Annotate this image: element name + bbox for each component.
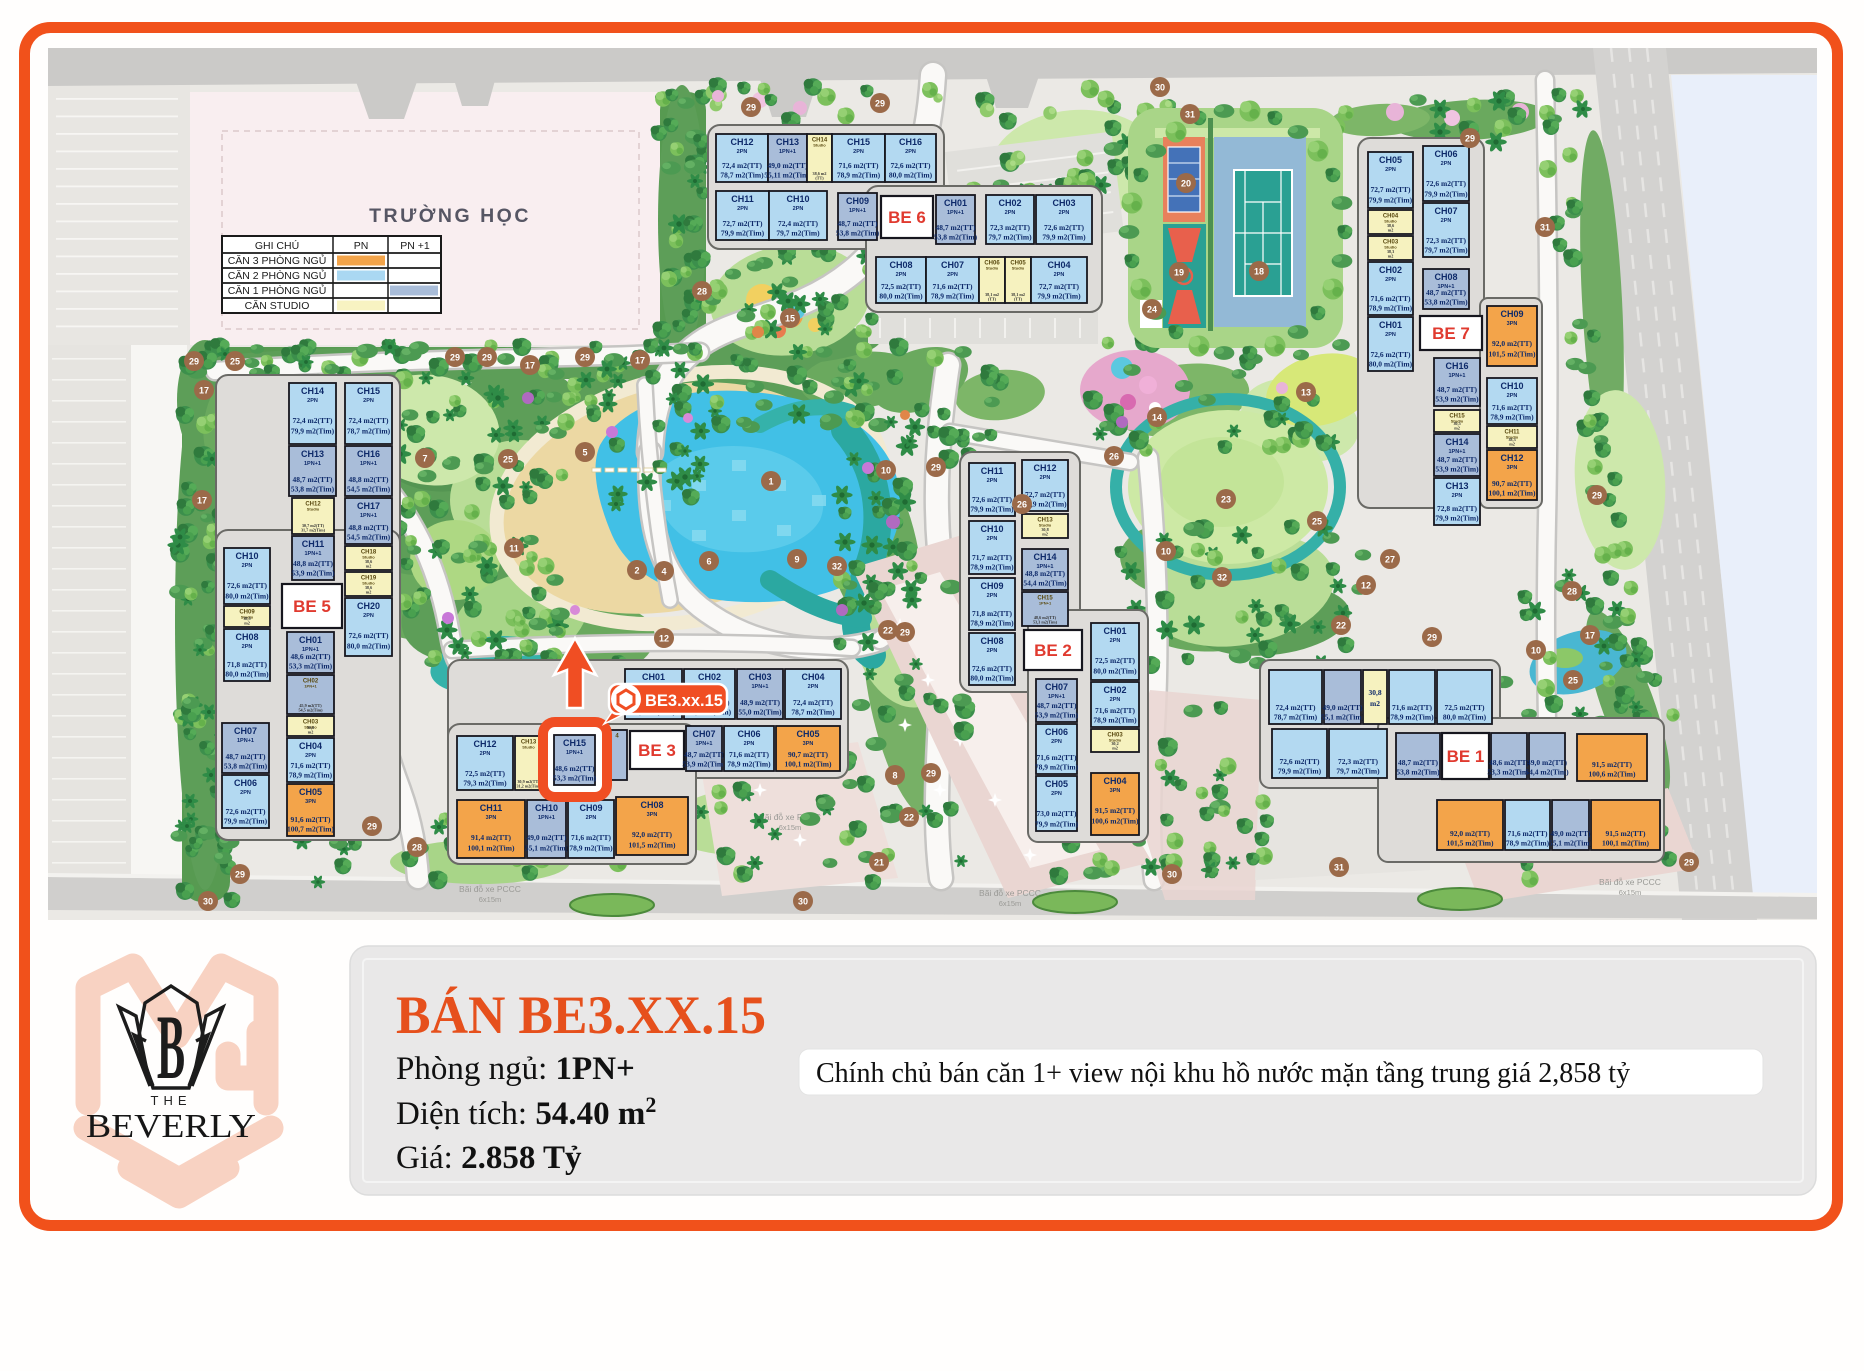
svg-text:30,8: 30,8 — [1368, 688, 1381, 697]
svg-text:100,1 m2(Tim): 100,1 m2(Tim) — [1602, 839, 1649, 848]
svg-text:80,0 m2(Tim): 80,0 m2(Tim) — [1443, 713, 1487, 722]
svg-text:48,7 m2(TT): 48,7 m2(TT) — [1398, 758, 1439, 767]
svg-text:71,6 m2(TT): 71,6 m2(TT) — [839, 161, 880, 170]
svg-text:(TT): (TT) — [815, 176, 824, 181]
svg-text:23: 23 — [1221, 495, 1231, 505]
svg-text:72,6 m2(TT): 72,6 m2(TT) — [1044, 223, 1085, 232]
svg-text:CH14: CH14 — [1445, 437, 1468, 447]
svg-text:29: 29 — [367, 822, 377, 832]
svg-text:29: 29 — [580, 353, 590, 363]
svg-text:54,5 m2(Tim): 54,5 m2(Tim) — [347, 485, 391, 494]
svg-text:78,9 m2(Tim): 78,9 m2(Tim) — [1093, 716, 1137, 725]
svg-text:78,9 m2(Tim): 78,9 m2(Tim) — [970, 563, 1014, 572]
svg-text:Studio: Studio — [1012, 266, 1025, 271]
svg-text:48,8 m2(TT): 48,8 m2(TT) — [293, 559, 334, 568]
svg-text:CH09: CH09 — [1500, 309, 1523, 319]
svg-text:53,9 m2(Tim): 53,9 m2(Tim) — [1435, 395, 1479, 404]
svg-text:79,9 m2(Tim): 79,9 m2(Tim) — [1035, 820, 1079, 829]
svg-text:2PN: 2PN — [1054, 272, 1065, 278]
svg-text:100,1 m2(Tim): 100,1 m2(Tim) — [785, 760, 832, 769]
svg-text:1PN+1: 1PN+1 — [947, 210, 964, 216]
svg-text:15: 15 — [785, 314, 795, 324]
svg-text:49,0 m2(TT): 49,0 m2(TT) — [527, 833, 568, 842]
svg-text:72,5 m2(TT): 72,5 m2(TT) — [1445, 703, 1486, 712]
svg-text:79,7 m2(Tim): 79,7 m2(Tim) — [988, 233, 1032, 242]
svg-text:CH15: CH15 — [847, 137, 870, 147]
svg-text:53,8 m2(Tim): 53,8 m2(Tim) — [1396, 768, 1440, 777]
svg-text:29: 29 — [189, 357, 199, 367]
svg-text:79,9 m2(Tim): 79,9 m2(Tim) — [721, 229, 765, 238]
svg-text:2PN: 2PN — [307, 398, 318, 404]
svg-text:1PN+1: 1PN+1 — [304, 461, 321, 467]
svg-text:79,9 m2(Tim): 79,9 m2(Tim) — [291, 427, 335, 436]
svg-text:18: 18 — [1254, 267, 1264, 277]
svg-text:2PN: 2PN — [896, 272, 907, 278]
svg-text:6x15m: 6x15m — [479, 895, 502, 904]
svg-text:12: 12 — [1361, 581, 1371, 591]
svg-text:20: 20 — [1181, 179, 1191, 189]
svg-text:3PN: 3PN — [1110, 788, 1121, 794]
svg-text:29: 29 — [926, 769, 936, 779]
svg-text:53,8 m2(Tim): 53,8 m2(Tim) — [224, 762, 268, 771]
svg-text:48,7 m2(TT): 48,7 m2(TT) — [684, 750, 725, 759]
svg-text:1PN+1: 1PN+1 — [305, 551, 322, 557]
svg-text:1PN+1: 1PN+1 — [304, 684, 317, 689]
svg-text:72,5 m2(TT): 72,5 m2(TT) — [465, 769, 506, 778]
svg-text:CH08: CH08 — [1434, 272, 1457, 282]
svg-text:79,9 m2(Tim): 79,9 m2(Tim) — [1278, 767, 1322, 776]
svg-text:CĂN STUDIO: CĂN STUDIO — [245, 299, 310, 312]
svg-text:2PN: 2PN — [808, 684, 819, 690]
svg-text:72,4 m2(TT): 72,4 m2(TT) — [349, 416, 390, 425]
svg-text:m2: m2 — [308, 730, 314, 735]
svg-text:CH08: CH08 — [235, 632, 258, 642]
svg-text:55,1 m2(Tim): 55,1 m2(Tim) — [1321, 713, 1365, 722]
svg-text:91,5 m2(TT): 91,5 m2(TT) — [1606, 829, 1647, 838]
svg-text:2PN: 2PN — [793, 206, 804, 212]
svg-text:79,9 m2(Tim): 79,9 m2(Tim) — [970, 505, 1014, 514]
svg-text:91,6 m2(TT): 91,6 m2(TT) — [291, 815, 332, 824]
svg-text:78,9 m2(Tim): 78,9 m2(Tim) — [727, 760, 771, 769]
svg-text:26: 26 — [1109, 452, 1119, 462]
svg-text:29: 29 — [235, 870, 245, 880]
svg-text:100,6 m2(Tim): 100,6 m2(Tim) — [1092, 817, 1139, 826]
svg-text:CH05: CH05 — [299, 787, 322, 797]
svg-text:2PN: 2PN — [987, 536, 998, 542]
svg-text:53,3 m2(Tim): 53,3 m2(Tim) — [553, 774, 597, 783]
svg-text:CH10: CH10 — [1500, 381, 1523, 391]
svg-text:48,7 m2(TT): 48,7 m2(TT) — [293, 475, 334, 484]
svg-text:71,8 m2(TT): 71,8 m2(TT) — [227, 660, 268, 669]
svg-text:71,6 m2(TT): 71,6 m2(TT) — [1508, 829, 1549, 838]
svg-text:1PN+1: 1PN+1 — [1449, 373, 1466, 379]
svg-text:54,4 m2(Tim): 54,4 m2(Tim) — [1023, 579, 1067, 588]
svg-text:72,5 m2(TT): 72,5 m2(TT) — [1095, 656, 1136, 665]
svg-text:80,0 m2(Tim): 80,0 m2(Tim) — [225, 670, 269, 679]
svg-text:55,11 m2(Tim): 55,11 m2(Tim) — [764, 171, 811, 180]
svg-text:80,0 m2(Tim): 80,0 m2(Tim) — [225, 592, 269, 601]
svg-text:CH16: CH16 — [357, 449, 380, 459]
svg-text:92,0 m2(TT): 92,0 m2(TT) — [1492, 339, 1533, 348]
svg-text:2PN: 2PN — [1441, 161, 1452, 167]
svg-text:31,2 m2(Tim): 31,2 m2(Tim) — [516, 784, 541, 789]
svg-text:54,4 m2(Tim): 54,4 m2(Tim) — [1525, 768, 1569, 777]
svg-text:72,8 m2(TT): 72,8 m2(TT) — [1437, 504, 1478, 513]
svg-text:48,8 m2(TT): 48,8 m2(TT) — [1025, 569, 1066, 578]
svg-text:CH09: CH09 — [980, 581, 1003, 591]
svg-text:CĂN 2 PHÒNG NGỦ: CĂN 2 PHÒNG NGỦ — [228, 269, 327, 282]
svg-text:30: 30 — [203, 897, 213, 907]
svg-text:TRƯỜNG HỌC: TRƯỜNG HỌC — [369, 203, 531, 227]
svg-text:CH08: CH08 — [889, 260, 912, 270]
svg-text:CH10: CH10 — [235, 551, 258, 561]
svg-text:48,6 m2(TT): 48,6 m2(TT) — [555, 764, 596, 773]
svg-text:m2: m2 — [1112, 746, 1118, 751]
svg-text:CH11: CH11 — [731, 194, 754, 204]
svg-text:48,7 m2(TT): 48,7 m2(TT) — [1037, 701, 1078, 710]
svg-text:101,5 m2(Tim): 101,5 m2(Tim) — [1489, 350, 1536, 359]
svg-text:25: 25 — [503, 455, 513, 465]
svg-text:26: 26 — [1017, 500, 1027, 510]
svg-text:CH08: CH08 — [980, 636, 1003, 646]
svg-text:78,7 m2(Tim): 78,7 m2(Tim) — [1274, 713, 1318, 722]
svg-text:BEVERLY: BEVERLY — [86, 1108, 256, 1145]
svg-text:78,9 m2(Tim): 78,9 m2(Tim) — [970, 619, 1014, 628]
svg-text:CH07: CH07 — [692, 729, 715, 739]
svg-text:m2: m2 — [1370, 699, 1380, 708]
svg-text:2PN: 2PN — [1110, 697, 1121, 703]
svg-text:91,5 m2(TT): 91,5 m2(TT) — [1592, 760, 1633, 769]
svg-text:CH11: CH11 — [981, 466, 1004, 476]
svg-text:2PN: 2PN — [744, 741, 755, 747]
svg-text:49,0 m2(TT): 49,0 m2(TT) — [1551, 829, 1592, 838]
svg-text:53,9 m2(Tim): 53,9 m2(Tim) — [1435, 465, 1479, 474]
svg-text:22: 22 — [883, 626, 893, 636]
svg-text:24: 24 — [1147, 305, 1157, 315]
svg-text:17: 17 — [1585, 631, 1595, 641]
svg-text:71,6 m2(TT): 71,6 m2(TT) — [1095, 706, 1136, 715]
svg-text:72,6 m2(TT): 72,6 m2(TT) — [1371, 350, 1412, 359]
svg-text:71,6 m2(TT): 71,6 m2(TT) — [1037, 753, 1078, 762]
svg-text:CH13: CH13 — [301, 449, 324, 459]
svg-text:CH05: CH05 — [1045, 779, 1068, 789]
svg-text:1PN+1: 1PN+1 — [360, 513, 377, 519]
svg-text:3PN: 3PN — [1507, 465, 1518, 471]
svg-text:10: 10 — [1161, 547, 1171, 557]
svg-text:71,6 m2(TT): 71,6 m2(TT) — [729, 750, 770, 759]
svg-text:CH11: CH11 — [302, 539, 325, 549]
svg-text:2PN: 2PN — [1385, 277, 1396, 283]
svg-text:100,1 m2(Tim): 100,1 m2(Tim) — [1489, 489, 1536, 498]
svg-text:17: 17 — [199, 386, 209, 396]
svg-text:29: 29 — [1465, 134, 1475, 144]
svg-text:2PN: 2PN — [305, 753, 316, 759]
svg-text:3PN: 3PN — [305, 799, 316, 805]
svg-text:THE: THE — [151, 1093, 192, 1108]
svg-text:CH07: CH07 — [1045, 682, 1068, 692]
svg-text:7: 7 — [422, 454, 427, 464]
svg-text:1: 1 — [768, 477, 773, 487]
svg-text:78,9 m2(Tim): 78,9 m2(Tim) — [1035, 763, 1079, 772]
svg-text:1PN+1: 1PN+1 — [1048, 694, 1065, 700]
svg-text:71,6 m2(TT): 71,6 m2(TT) — [933, 282, 974, 291]
svg-text:53,8 m2(Tim): 53,8 m2(Tim) — [291, 485, 335, 494]
svg-text:29: 29 — [875, 99, 885, 109]
svg-text:90,7 m2(TT): 90,7 m2(TT) — [1492, 479, 1533, 488]
svg-text:CH02: CH02 — [998, 198, 1021, 208]
svg-text:29: 29 — [931, 463, 941, 473]
svg-text:72,4 m2(TT): 72,4 m2(TT) — [1276, 703, 1317, 712]
svg-text:m2: m2 — [366, 590, 372, 595]
svg-text:CH04: CH04 — [801, 672, 824, 682]
svg-text:19: 19 — [1174, 268, 1184, 278]
svg-text:2PN: 2PN — [1051, 739, 1062, 745]
svg-text:1PN+1: 1PN+1 — [566, 750, 583, 756]
svg-text:79,9 m2(Tim): 79,9 m2(Tim) — [1369, 196, 1413, 205]
svg-text:3PN: 3PN — [647, 812, 658, 818]
svg-text:CH12: CH12 — [730, 137, 753, 147]
svg-text:11: 11 — [509, 544, 519, 554]
svg-text:CH09: CH09 — [846, 196, 869, 206]
svg-text:CH04: CH04 — [1047, 260, 1070, 270]
svg-text:72,6 m2(TT): 72,6 m2(TT) — [226, 807, 267, 816]
svg-text:Phòng ngủ: 1PN+: Phòng ngủ: 1PN+ — [396, 1051, 635, 1087]
svg-text:101,5 m2(Tim): 101,5 m2(Tim) — [1447, 839, 1494, 848]
svg-text:29: 29 — [450, 353, 460, 363]
svg-text:Bãi đỗ xe PCCC: Bãi đỗ xe PCCC — [979, 888, 1041, 898]
svg-text:30: 30 — [798, 897, 808, 907]
svg-text:GHI CHÚ: GHI CHÚ — [255, 239, 299, 252]
svg-text:CH13: CH13 — [1445, 481, 1468, 491]
svg-text:2PN: 2PN — [1441, 218, 1452, 224]
svg-text:79,7 m2(Tim): 79,7 m2(Tim) — [1336, 767, 1380, 776]
svg-text:53,8 m2(Tim): 53,8 m2(Tim) — [1424, 298, 1468, 307]
svg-text:100,7 m2(Tim): 100,7 m2(Tim) — [287, 825, 334, 834]
svg-text:79,9 m2(Tim): 79,9 m2(Tim) — [1042, 233, 1086, 242]
svg-text:29: 29 — [1592, 491, 1602, 501]
svg-text:CH12: CH12 — [1500, 453, 1523, 463]
svg-text:2PN: 2PN — [242, 563, 253, 569]
svg-text:CH04: CH04 — [299, 741, 322, 751]
svg-text:48,8 m2(TT): 48,8 m2(TT) — [349, 523, 390, 532]
svg-text:CH06: CH06 — [1045, 727, 1068, 737]
svg-text:72,7 m2(TT): 72,7 m2(TT) — [1025, 490, 1066, 499]
svg-text:31: 31 — [1540, 223, 1550, 233]
svg-text:48,6 m2(TT): 48,6 m2(TT) — [1489, 758, 1530, 767]
svg-text:101,5 m2(Tim): 101,5 m2(Tim) — [629, 841, 676, 850]
svg-text:CH02: CH02 — [698, 672, 721, 682]
svg-text:79,3 m2(Tim): 79,3 m2(Tim) — [463, 779, 507, 788]
svg-text:72,6 m2(TT): 72,6 m2(TT) — [972, 664, 1013, 673]
svg-text:78,9 m2(Tim): 78,9 m2(Tim) — [1506, 839, 1550, 848]
svg-text:78,7 m2(Tim): 78,7 m2(Tim) — [791, 708, 835, 717]
svg-text:80,0 m2(Tim): 80,0 m2(Tim) — [970, 674, 1014, 683]
svg-text:2PN: 2PN — [240, 790, 251, 796]
svg-text:17: 17 — [197, 496, 207, 506]
svg-text:2PN: 2PN — [480, 751, 491, 757]
svg-text:1PN+1: 1PN+1 — [360, 461, 377, 467]
svg-text:13: 13 — [1301, 388, 1311, 398]
svg-text:100,1 m2(Tim): 100,1 m2(Tim) — [468, 844, 515, 853]
svg-text:m2: m2 — [244, 621, 250, 626]
svg-text:12: 12 — [659, 634, 669, 644]
svg-text:2PN: 2PN — [1040, 475, 1051, 481]
svg-text:CH04: CH04 — [1103, 776, 1126, 786]
svg-text:31: 31 — [1185, 110, 1195, 120]
svg-text:1PN+1: 1PN+1 — [752, 684, 769, 690]
svg-text:2PN: 2PN — [1110, 638, 1121, 644]
svg-text:48,9 m2(TT): 48,9 m2(TT) — [740, 698, 781, 707]
svg-text:17: 17 — [635, 356, 645, 366]
svg-text:3PN: 3PN — [1507, 321, 1518, 327]
svg-text:CH01: CH01 — [299, 635, 322, 645]
svg-text:78,9 m2(Tim): 78,9 m2(Tim) — [1490, 413, 1534, 422]
svg-text:1PN+1: 1PN+1 — [849, 208, 866, 214]
svg-text:2PN: 2PN — [1385, 167, 1396, 173]
svg-text:28: 28 — [697, 287, 707, 297]
svg-text:29: 29 — [1684, 858, 1694, 868]
svg-text:100,6 m2(Tim): 100,6 m2(Tim) — [1589, 770, 1636, 779]
svg-text:22: 22 — [904, 813, 914, 823]
svg-text:54,5 m2(Tim): 54,5 m2(Tim) — [347, 533, 391, 542]
svg-text:PN: PN — [354, 240, 369, 252]
svg-text:71,7 m2(TT): 71,7 m2(TT) — [972, 553, 1013, 562]
svg-text:BE 1: BE 1 — [1447, 747, 1485, 766]
svg-text:Bãi đỗ xe PCCC: Bãi đỗ xe PCCC — [1599, 877, 1661, 887]
svg-text:CH16: CH16 — [1445, 361, 1468, 371]
svg-text:28: 28 — [1567, 587, 1577, 597]
svg-text:49,0 m2(TT): 49,0 m2(TT) — [768, 161, 809, 170]
svg-text:54,5 m2(Tim): 54,5 m2(Tim) — [298, 708, 323, 713]
svg-text:2PN: 2PN — [987, 593, 998, 599]
svg-text:25: 25 — [1312, 517, 1322, 527]
svg-text:49,0 m2(TT): 49,0 m2(TT) — [1323, 703, 1364, 712]
svg-text:55,1 m2(Tim): 55,1 m2(Tim) — [1549, 839, 1593, 848]
svg-text:1PN+1: 1PN+1 — [1039, 601, 1052, 606]
svg-text:2PN: 2PN — [363, 398, 374, 404]
svg-text:3PN: 3PN — [486, 815, 497, 821]
svg-text:PN +1: PN +1 — [400, 240, 430, 252]
svg-text:53,9 m2(Tim): 53,9 m2(Tim) — [1035, 711, 1079, 720]
svg-text:27: 27 — [1385, 555, 1395, 565]
svg-text:72,6 m2(TT): 72,6 m2(TT) — [1426, 179, 1467, 188]
svg-text:78,9 m2(Tim): 78,9 m2(Tim) — [289, 771, 333, 780]
svg-text:32: 32 — [1217, 573, 1227, 583]
svg-text:22: 22 — [1336, 621, 1346, 631]
svg-text:2PN: 2PN — [987, 478, 998, 484]
svg-text:72,3 m2(TT): 72,3 m2(TT) — [990, 223, 1031, 232]
svg-text:m2: m2 — [1454, 426, 1460, 431]
svg-text:Chính chủ bán căn 1+ view nội: Chính chủ bán căn 1+ view nội khu hồ nướ… — [816, 1058, 1630, 1089]
svg-text:55,0 m2(Tim): 55,0 m2(Tim) — [738, 708, 782, 717]
svg-text:30: 30 — [1167, 870, 1177, 880]
svg-text:m2: m2 — [1042, 532, 1048, 537]
svg-text:73,0 m2(TT): 73,0 m2(TT) — [1037, 809, 1078, 818]
svg-text:CH08: CH08 — [640, 800, 663, 810]
svg-text:78,7 m2(Tim): 78,7 m2(Tim) — [720, 171, 764, 180]
svg-text:6x15m: 6x15m — [1619, 888, 1642, 897]
svg-text:2PN: 2PN — [737, 149, 748, 155]
svg-text:10: 10 — [1531, 646, 1541, 656]
svg-text:48,8 m2(TT): 48,8 m2(TT) — [349, 475, 390, 484]
svg-text:92,0 m2(TT): 92,0 m2(TT) — [632, 830, 673, 839]
svg-text:Studio: Studio — [813, 143, 826, 148]
svg-text:2PN: 2PN — [1059, 210, 1070, 216]
svg-text:1PN+1: 1PN+1 — [538, 815, 555, 821]
svg-text:2: 2 — [634, 566, 639, 576]
svg-text:72,3 m2(TT): 72,3 m2(TT) — [1338, 757, 1379, 766]
svg-text:2PN: 2PN — [947, 272, 958, 278]
svg-text:CH01: CH01 — [944, 198, 967, 208]
svg-text:72,4 m2(TT): 72,4 m2(TT) — [793, 698, 834, 707]
svg-text:78,9 m2(Tim): 78,9 m2(Tim) — [931, 292, 975, 301]
svg-text:CH07: CH07 — [1434, 206, 1457, 216]
svg-text:CH05: CH05 — [796, 729, 819, 739]
svg-text:CH02: CH02 — [1379, 265, 1402, 275]
svg-text:53,3 m2(Tim): 53,3 m2(Tim) — [289, 662, 333, 671]
svg-text:m2: m2 — [1509, 442, 1515, 447]
svg-text:CH10: CH10 — [535, 803, 558, 813]
svg-text:53,8 m2(Tim): 53,8 m2(Tim) — [934, 233, 978, 242]
svg-text:90,7 m2(TT): 90,7 m2(TT) — [788, 750, 829, 759]
svg-text:6x15m: 6x15m — [779, 823, 802, 832]
svg-text:78,9 m2(Tim): 78,9 m2(Tim) — [1369, 304, 1413, 313]
svg-text:CH16: CH16 — [899, 137, 922, 147]
svg-text:72,6 m2(TT): 72,6 m2(TT) — [891, 161, 932, 170]
svg-text:79,7 m2(Tim): 79,7 m2(Tim) — [1424, 246, 1468, 255]
svg-text:CH14: CH14 — [1033, 552, 1056, 562]
svg-text:BE 7: BE 7 — [1432, 324, 1470, 343]
svg-text:CH10: CH10 — [980, 524, 1003, 534]
svg-text:Studio: Studio — [986, 266, 999, 271]
svg-text:72,4 m2(TT): 72,4 m2(TT) — [722, 161, 763, 170]
svg-text:49,0 m2(TT): 49,0 m2(TT) — [1527, 758, 1568, 767]
svg-text:30: 30 — [1155, 83, 1165, 93]
svg-text:72,6 m2(TT): 72,6 m2(TT) — [972, 495, 1013, 504]
svg-text:14: 14 — [1152, 413, 1162, 423]
svg-text:72,4 m2(TT): 72,4 m2(TT) — [778, 219, 819, 228]
svg-text:CH03: CH03 — [748, 672, 771, 682]
svg-text:72,6 m2(TT): 72,6 m2(TT) — [1280, 757, 1321, 766]
svg-text:32: 32 — [832, 562, 842, 572]
svg-text:CH03: CH03 — [1052, 198, 1075, 208]
svg-text:BE 3: BE 3 — [638, 741, 676, 760]
svg-text:80,0 m2(Tim): 80,0 m2(Tim) — [1369, 360, 1413, 369]
svg-text:2PN: 2PN — [1385, 332, 1396, 338]
svg-text:79,9 m2(Tim): 79,9 m2(Tim) — [1424, 190, 1468, 199]
svg-text:92,0 m2(TT): 92,0 m2(TT) — [1450, 829, 1491, 838]
svg-text:BE 2: BE 2 — [1034, 641, 1072, 660]
svg-text:CH01: CH01 — [1379, 320, 1402, 330]
svg-text:72,3 m2(TT): 72,3 m2(TT) — [1426, 236, 1467, 245]
svg-text:80,0 m2(Tim): 80,0 m2(Tim) — [879, 292, 923, 301]
svg-text:10: 10 — [881, 466, 891, 476]
svg-text:CĂN 3 PHÒNG NGỦ: CĂN 3 PHÒNG NGỦ — [228, 254, 327, 267]
svg-text:29: 29 — [1427, 633, 1437, 643]
svg-text:78,9 m2(Tim): 78,9 m2(Tim) — [569, 844, 613, 853]
svg-text:CH06: CH06 — [1434, 149, 1457, 159]
svg-text:2PN: 2PN — [853, 149, 864, 155]
svg-text:5: 5 — [582, 448, 587, 458]
svg-text:55,1 m2(Tim): 55,1 m2(Tim) — [525, 844, 569, 853]
svg-text:80,0 m2(Tim): 80,0 m2(Tim) — [1093, 667, 1137, 676]
svg-text:CH07: CH07 — [941, 260, 964, 270]
svg-text:CH20: CH20 — [357, 601, 380, 611]
svg-text:BE3.xx.15: BE3.xx.15 — [645, 692, 723, 710]
svg-text:2PN: 2PN — [905, 149, 916, 155]
svg-text:CH15: CH15 — [563, 738, 586, 748]
svg-text:72,5 m2(TT): 72,5 m2(TT) — [881, 282, 922, 291]
